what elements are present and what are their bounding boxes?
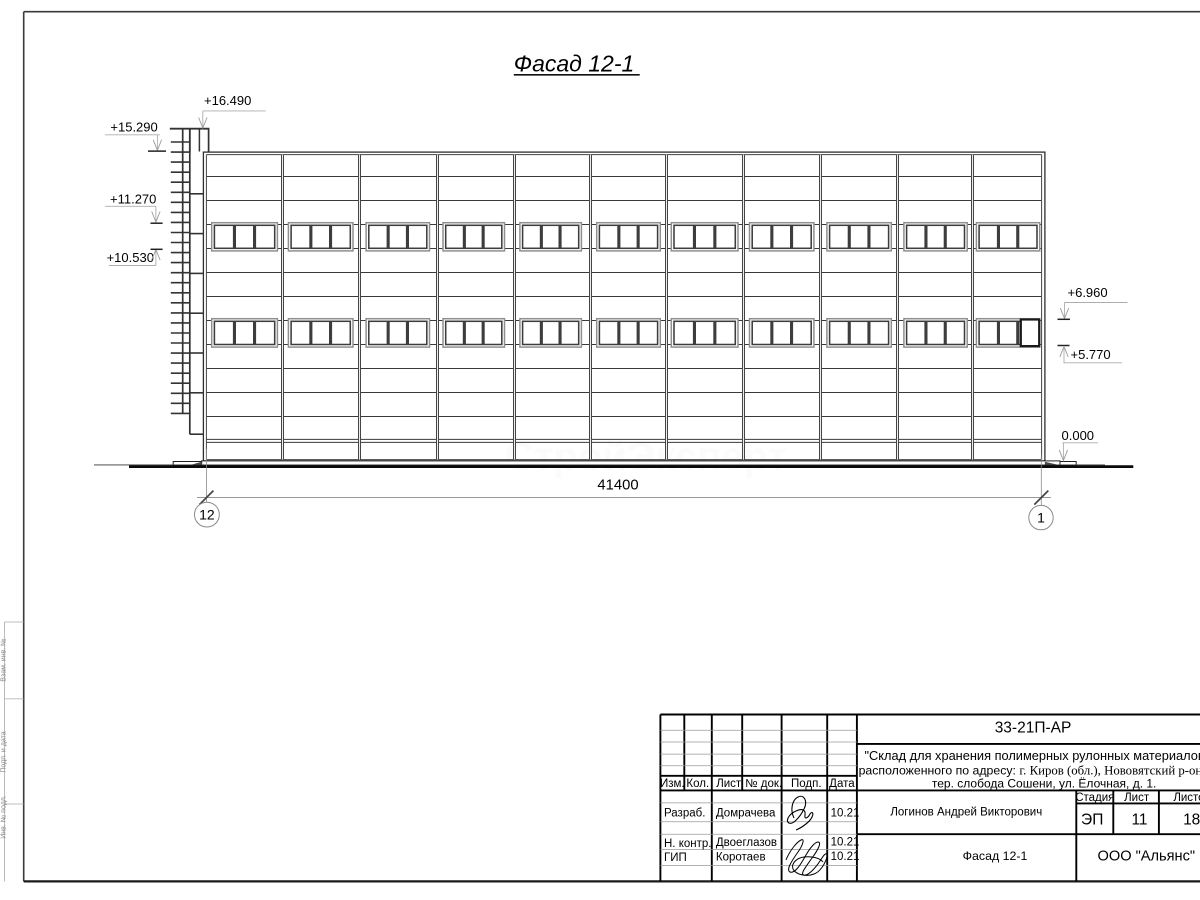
svg-text:41400: 41400: [597, 477, 638, 493]
svg-text:Разраб.: Разраб.: [664, 808, 705, 820]
svg-text:Логинов Андрей Викторович: Логинов Андрей Викторович: [890, 807, 1042, 819]
svg-text:№ док.: № док.: [745, 778, 782, 790]
svg-text:"Склад для хранения полимерных: "Склад для хранения полимерных рулонных …: [865, 748, 1200, 763]
svg-text:Двоеглазов: Двоеглазов: [716, 837, 777, 849]
svg-text:18: 18: [1183, 811, 1200, 828]
svg-text:10.21: 10.21: [831, 837, 860, 849]
svg-text:Подп.: Подп.: [791, 778, 822, 790]
svg-text:+6.960: +6.960: [1068, 285, 1108, 300]
svg-text:Дата: Дата: [829, 778, 855, 790]
svg-text:Подп. и дата: Подп. и дата: [1, 731, 8, 772]
svg-text:+15.290: +15.290: [110, 119, 157, 134]
svg-text:Кол.: Кол.: [686, 778, 709, 790]
svg-text:0.000: 0.000: [1062, 428, 1095, 443]
svg-text:11: 11: [1131, 811, 1147, 828]
svg-text:Взам. инв. №: Взам. инв. №: [1, 638, 8, 681]
svg-text:тер. слобода Сошени, ул. Ёлочн: тер. слобода Сошени, ул. Ёлочная, д. 1.: [932, 777, 1156, 791]
svg-text:10.21: 10.21: [831, 807, 860, 819]
svg-text:Фасад 12-1: Фасад 12-1: [963, 849, 1028, 863]
svg-text:+5.770: +5.770: [1071, 347, 1111, 362]
svg-text:Фасад 12-1: Фасад 12-1: [514, 50, 635, 76]
svg-text:+16.490: +16.490: [204, 93, 251, 108]
svg-text:Лист: Лист: [716, 778, 742, 790]
svg-text:Изм.: Изм.: [660, 778, 685, 790]
svg-text:Коротаев: Коротаев: [716, 852, 766, 864]
svg-text:расположенного по адресу: г. К: расположенного по адресу: г. Киров (обл.…: [859, 764, 1200, 778]
svg-text:12: 12: [199, 507, 215, 523]
svg-text:Стадия: Стадия: [1075, 792, 1114, 804]
svg-text:Н. контр.: Н. контр.: [664, 838, 711, 850]
svg-text:Домрачева: Домрачева: [716, 808, 776, 820]
svg-text:+10.530: +10.530: [107, 250, 154, 265]
svg-text:33-21П-АР: 33-21П-АР: [995, 720, 1072, 737]
svg-text:Инв. № подл.: Инв. № подл.: [1, 795, 8, 839]
svg-text:Листов: Листов: [1173, 792, 1200, 804]
svg-text:1: 1: [1037, 510, 1045, 526]
svg-text:ЭП: ЭП: [1081, 811, 1103, 828]
svg-text:Лист: Лист: [1124, 792, 1150, 804]
svg-text:+11.270: +11.270: [110, 192, 156, 207]
svg-text:ГИП: ГИП: [664, 852, 687, 864]
svg-text:ООО "Альянс": ООО "Альянс": [1098, 849, 1196, 865]
svg-text:10.21: 10.21: [831, 851, 860, 863]
